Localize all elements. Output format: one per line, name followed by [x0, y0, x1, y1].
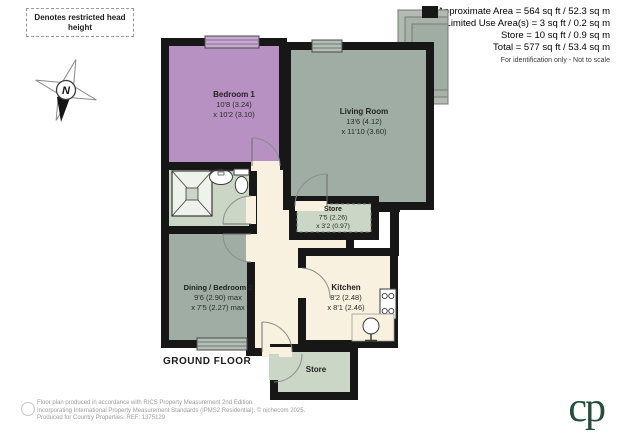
store-top-dim2: x 3'2 (0.97) — [316, 223, 350, 230]
kitchen-dim1: 8'2 (2.48) — [330, 293, 362, 302]
floor-label: GROUND FLOOR — [163, 356, 251, 367]
living-room-window — [312, 40, 342, 52]
kitchen-name: Kitchen — [331, 283, 360, 292]
nichecom-logo-icon — [21, 402, 35, 416]
footer-line-3: Produced for Country Properties. REF: 13… — [37, 415, 305, 423]
dining-dim2: x 7'5 (2.27) max — [191, 303, 245, 312]
toilet-icon — [234, 169, 249, 194]
kitchen-sink-icon — [352, 314, 394, 341]
compass-north-label: N — [62, 85, 71, 97]
bedroom1-name: Bedroom 1 — [213, 90, 255, 99]
bedroom1-dim2: x 10'2 (3.10) — [213, 110, 255, 119]
dining-window — [197, 338, 247, 350]
room-living — [287, 46, 430, 206]
floorplan-page: Denotes restricted head height Approxima… — [0, 0, 618, 437]
compass-icon: N — [26, 50, 107, 131]
kitchen-dim2: x 8'1 (2.46) — [327, 303, 365, 312]
footer-line-2: Incorporating International Property Mea… — [37, 408, 305, 416]
footer-line-1: Floor plan produced in accordance with R… — [37, 400, 305, 408]
store-bottom-name: Store — [306, 365, 327, 374]
footer-disclaimer: Floor plan produced in accordance with R… — [37, 400, 305, 423]
living-name: Living Room — [340, 107, 388, 116]
living-dim2: x 11'10 (3.60) — [341, 127, 387, 136]
store-top-dim1: 7'5 (2.26) — [319, 215, 348, 222]
living-dim1: 13'6 (4.12) — [346, 117, 382, 126]
floorplan-svg: N — [0, 0, 618, 437]
store-top-name: Store — [324, 206, 342, 213]
sink-icon — [209, 170, 233, 185]
shower-icon — [172, 171, 212, 216]
dining-name: Dining / Bedroom 2 — [184, 283, 253, 292]
bedroom1-window — [205, 36, 259, 48]
country-properties-logo: cp — [568, 384, 604, 432]
bedroom1-dim1: 10'8 (3.24) — [216, 100, 252, 109]
dining-dim1: 9'6 (2.90) max — [194, 293, 242, 302]
